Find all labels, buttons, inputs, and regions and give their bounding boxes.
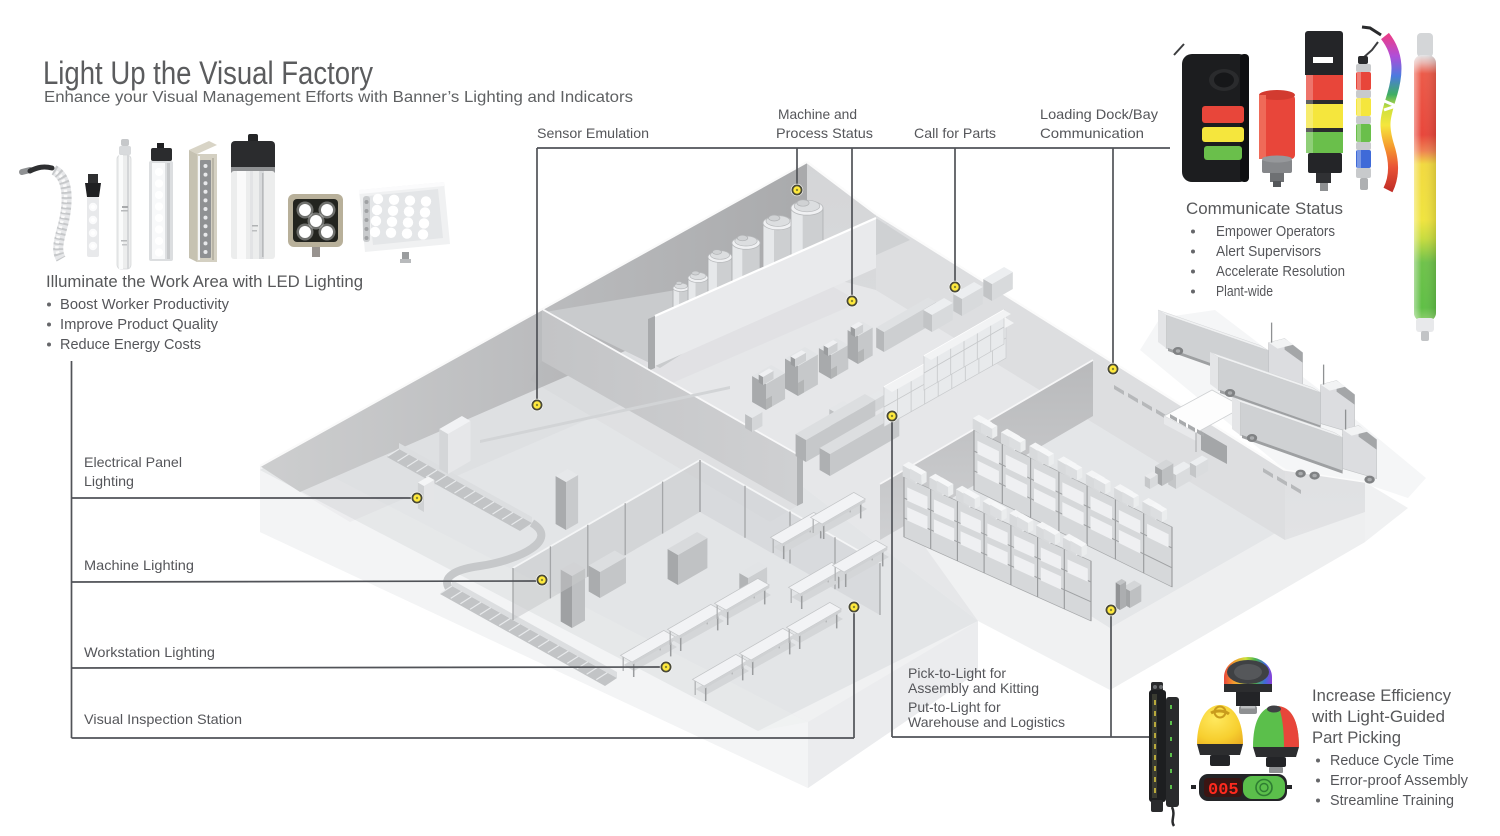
svg-text:Process Status: Process Status: [776, 125, 873, 141]
svg-text:Reduce Cycle Time: Reduce Cycle Time: [1330, 753, 1454, 769]
svg-text:Put-to-Light for: Put-to-Light for: [908, 699, 1001, 715]
svg-text:Electrical Panel: Electrical Panel: [84, 454, 182, 470]
svg-text:Enhance your Visual Management: Enhance your Visual Management Efforts w…: [44, 89, 633, 106]
svg-text:Improve Product Quality: Improve Product Quality: [60, 317, 219, 333]
svg-text:Machine and: Machine and: [778, 106, 857, 122]
svg-text:Assembly and Kitting: Assembly and Kitting: [908, 680, 1039, 696]
svg-text:Pick-to-Light for: Pick-to-Light for: [908, 665, 1006, 681]
svg-text:Visual Inspection Station: Visual Inspection Station: [84, 711, 242, 727]
svg-text:with Light-Guided: with Light-Guided: [1311, 708, 1445, 726]
svg-text:Loading Dock/Bay: Loading Dock/Bay: [1040, 106, 1158, 122]
svg-text:Reduce Energy Costs: Reduce Energy Costs: [60, 337, 201, 353]
svg-text:Machine Lighting: Machine Lighting: [84, 557, 194, 573]
svg-text:Communication: Communication: [1040, 125, 1144, 141]
svg-text:Boost Worker Productivity: Boost Worker Productivity: [60, 297, 230, 313]
svg-text:Alert Supervisors: Alert Supervisors: [1216, 244, 1321, 260]
svg-text:Illuminate the Work Area with: Illuminate the Work Area with LED Lighti…: [46, 272, 363, 291]
svg-text:Error-proof Assembly: Error-proof Assembly: [1330, 773, 1469, 789]
svg-text:Streamline Training: Streamline Training: [1330, 793, 1454, 809]
svg-text:Increase Efficiency: Increase Efficiency: [1312, 687, 1452, 705]
svg-text:005: 005: [1208, 781, 1239, 800]
svg-text:Communicate Status: Communicate Status: [1186, 199, 1343, 218]
svg-text:Sensor Emulation: Sensor Emulation: [537, 125, 649, 141]
svg-text:Light Up the Visual Factory: Light Up the Visual Factory: [43, 55, 373, 91]
svg-text:Warehouse and Logistics: Warehouse and Logistics: [908, 714, 1065, 730]
svg-text:Part Picking: Part Picking: [1312, 729, 1401, 747]
svg-text:Plant-wide: Plant-wide: [1216, 284, 1273, 300]
svg-text:Accelerate Resolution: Accelerate Resolution: [1216, 264, 1345, 280]
svg-text:Empower Operators: Empower Operators: [1216, 224, 1335, 240]
svg-text:Lighting: Lighting: [84, 473, 134, 489]
svg-text:Call for Parts: Call for Parts: [914, 125, 996, 141]
svg-text:Workstation Lighting: Workstation Lighting: [84, 644, 215, 660]
